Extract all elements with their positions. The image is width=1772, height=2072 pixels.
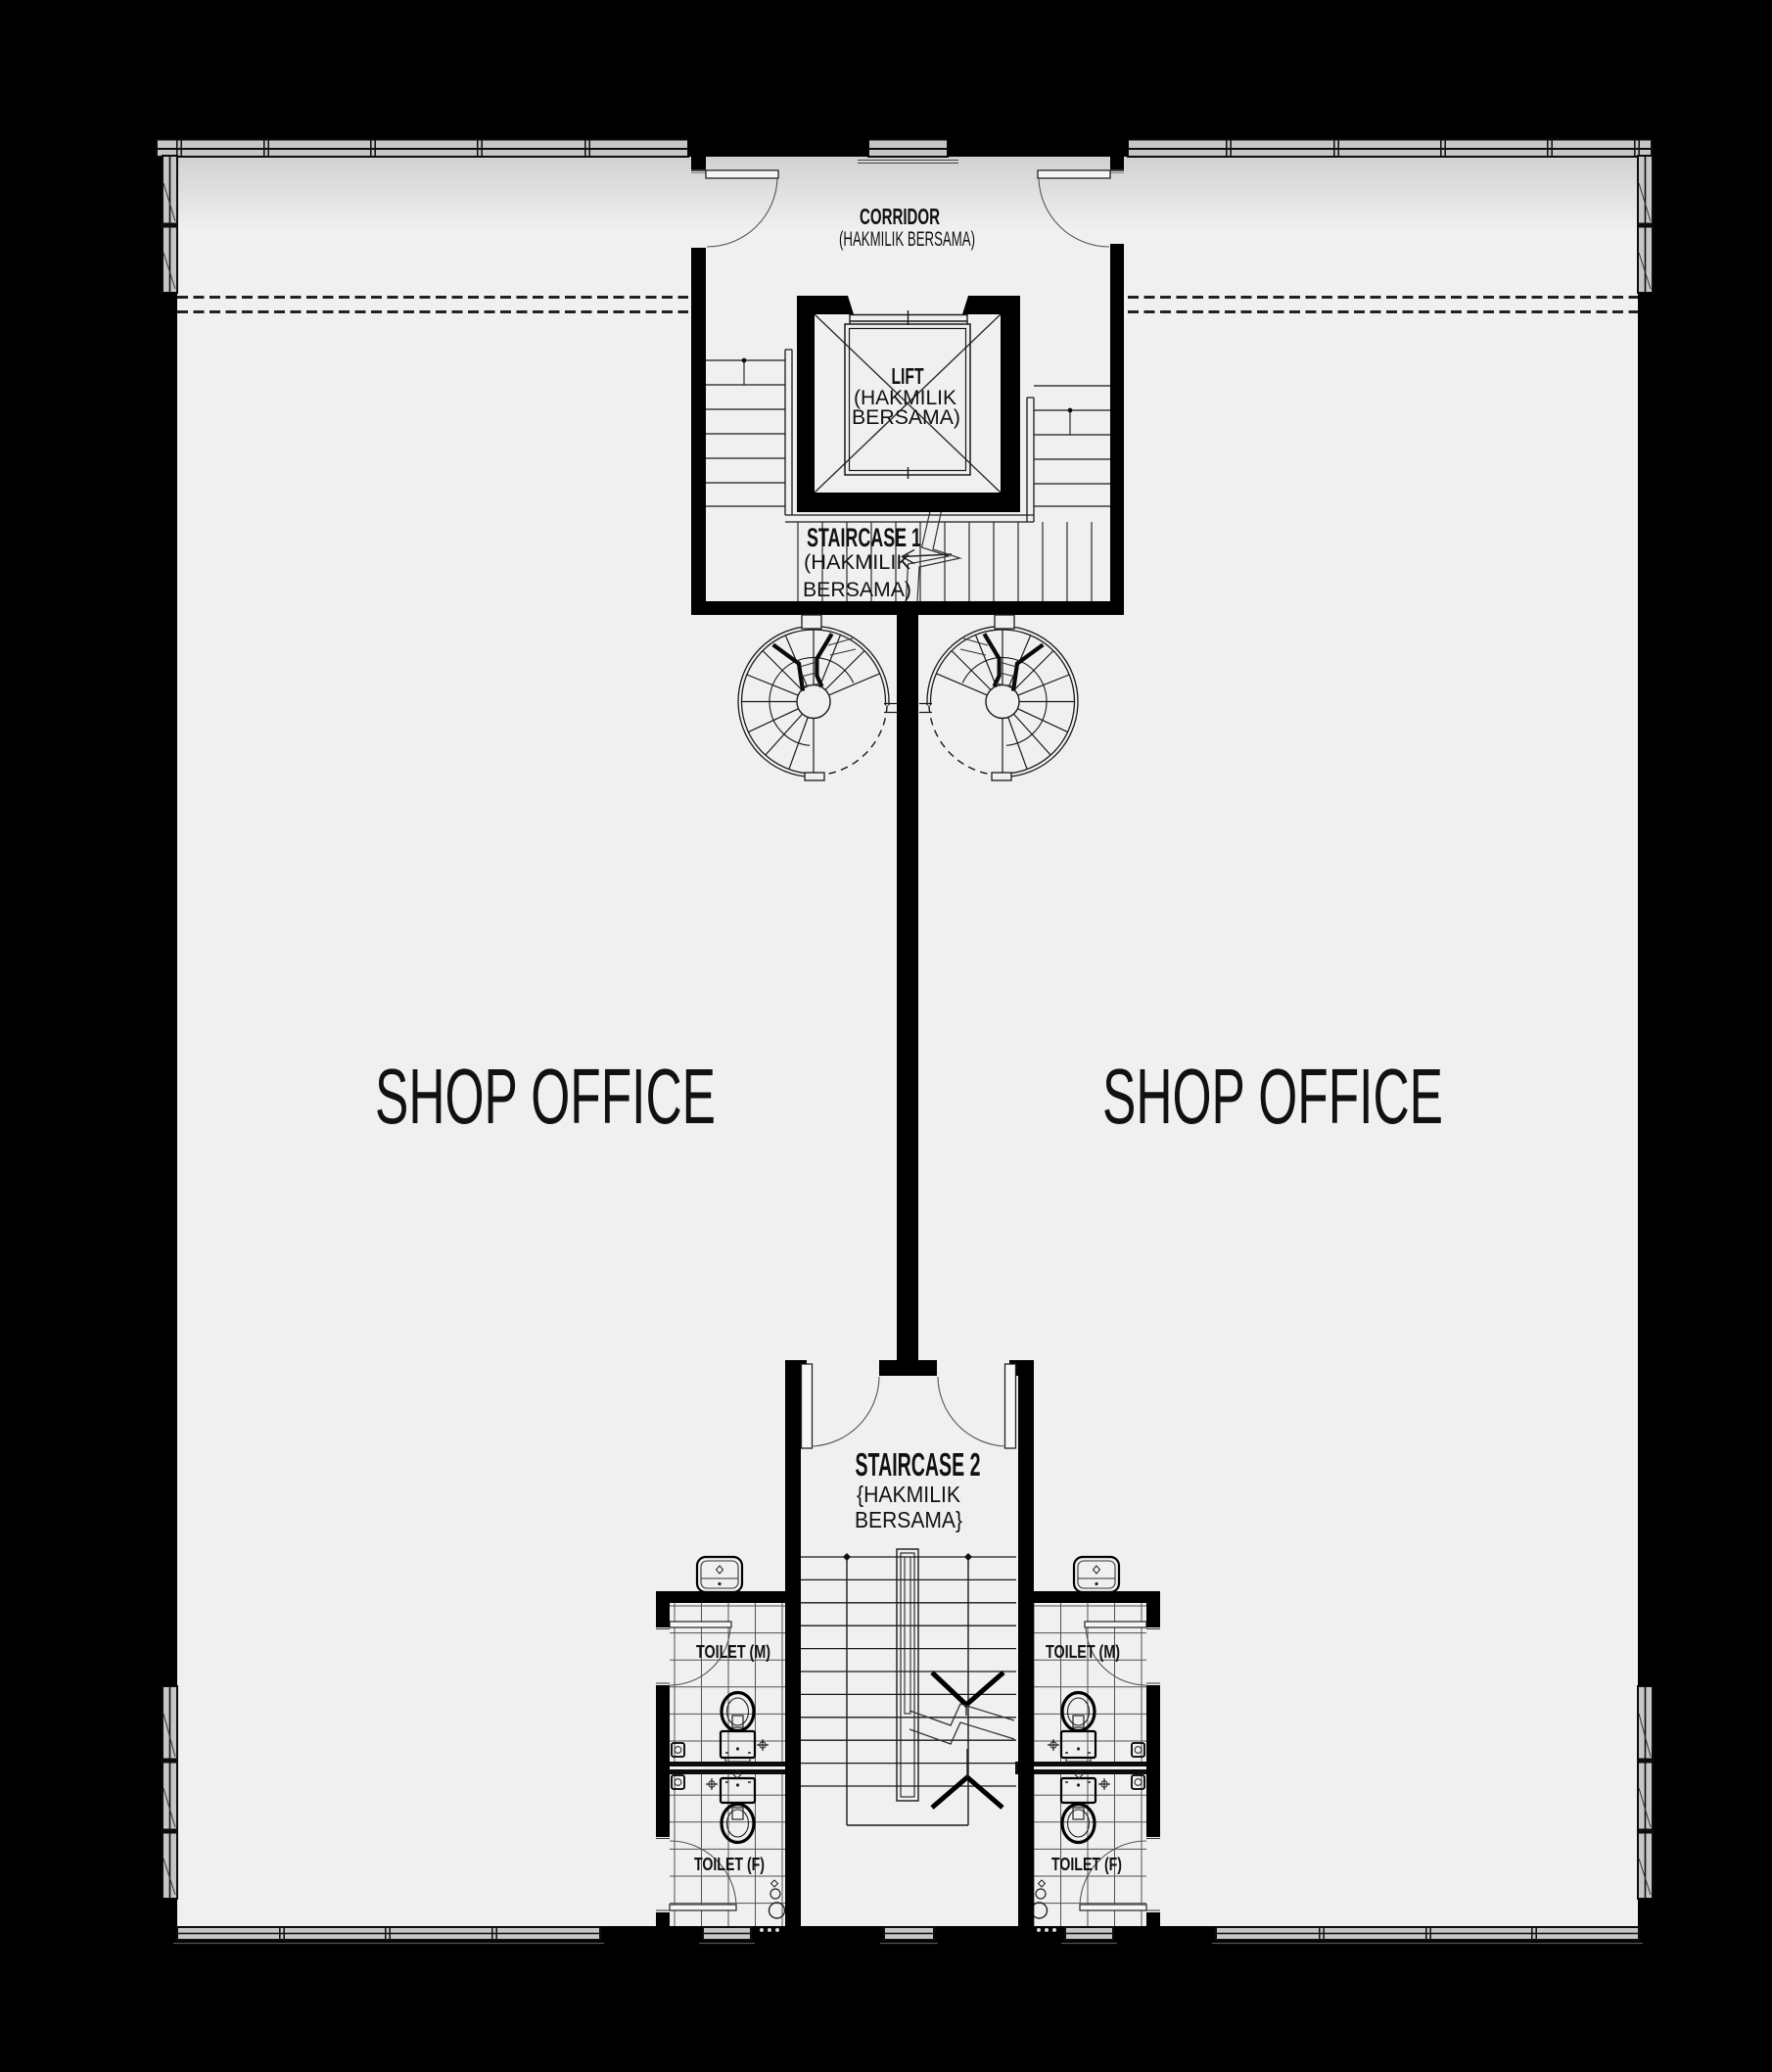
svg-text:BERSAMA}: BERSAMA}	[855, 1507, 962, 1532]
svg-text:SHOP OFFICE: SHOP OFFICE	[1102, 1053, 1443, 1140]
svg-text:STAIRCASE 1: STAIRCASE 1	[807, 523, 921, 552]
svg-text:TOILET (F): TOILET (F)	[1051, 1855, 1122, 1874]
svg-text:TOILET (M): TOILET (M)	[1046, 1642, 1120, 1662]
svg-text:STAIRCASE 2: STAIRCASE 2	[856, 1446, 981, 1483]
svg-text:(HAKMILIK: (HAKMILIK	[804, 551, 910, 574]
svg-text:TOILET (M): TOILET (M)	[696, 1642, 770, 1662]
svg-text:BERSAMA): BERSAMA)	[803, 579, 911, 601]
svg-text:SHOP OFFICE: SHOP OFFICE	[375, 1053, 716, 1140]
svg-text:TOILET (F): TOILET (F)	[694, 1855, 765, 1874]
svg-text:CORRIDOR: CORRIDOR	[860, 204, 940, 229]
svg-text:BERSAMA): BERSAMA)	[852, 406, 960, 429]
svg-text:LIFT: LIFT	[892, 363, 924, 389]
svg-text:(HAKMILIK BERSAMA): (HAKMILIK BERSAMA)	[839, 228, 975, 251]
svg-text:{HAKMILIK: {HAKMILIK	[857, 1482, 961, 1507]
